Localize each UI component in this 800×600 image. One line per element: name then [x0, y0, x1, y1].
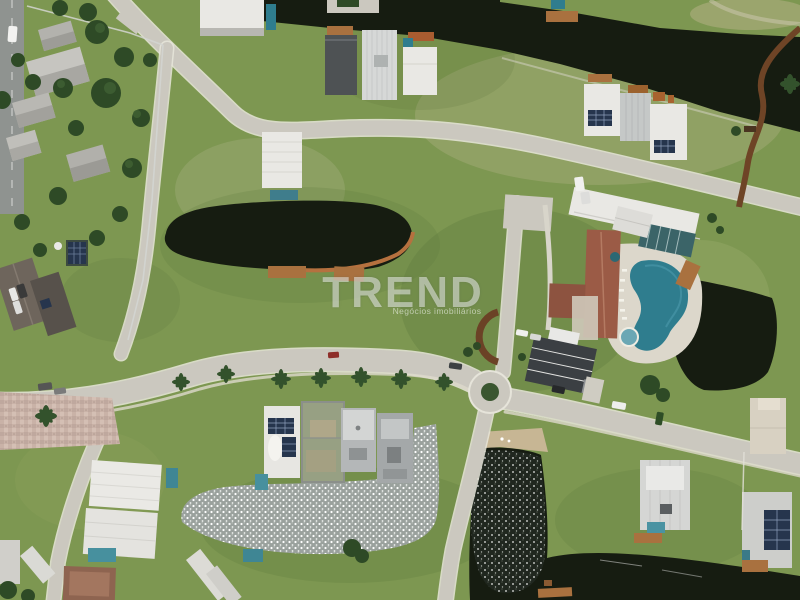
- pond-dock: [334, 266, 365, 282]
- construction-lot: [302, 402, 344, 482]
- aerial-scene: [0, 0, 800, 600]
- house-construction: [63, 566, 116, 600]
- solar-array: [68, 242, 86, 264]
- roundabout: [468, 370, 512, 414]
- paver-boulevard: [0, 392, 120, 450]
- house: [750, 398, 786, 454]
- house: [325, 26, 357, 95]
- house: [620, 85, 651, 141]
- house: [742, 492, 792, 568]
- red-car: [328, 352, 339, 359]
- kids-pool: [620, 328, 638, 346]
- house-solar: [264, 406, 300, 478]
- aerial-photo: TREND Negócios imobiliários: [0, 0, 800, 600]
- house: [89, 460, 162, 511]
- house: [362, 30, 397, 100]
- pond-dock: [268, 266, 306, 278]
- house-construction: [341, 408, 376, 472]
- satellite-dish: [54, 242, 62, 250]
- clubhouse-dome: [610, 252, 620, 262]
- truck: [7, 26, 17, 43]
- house-construction: [377, 413, 413, 483]
- house: [640, 460, 690, 530]
